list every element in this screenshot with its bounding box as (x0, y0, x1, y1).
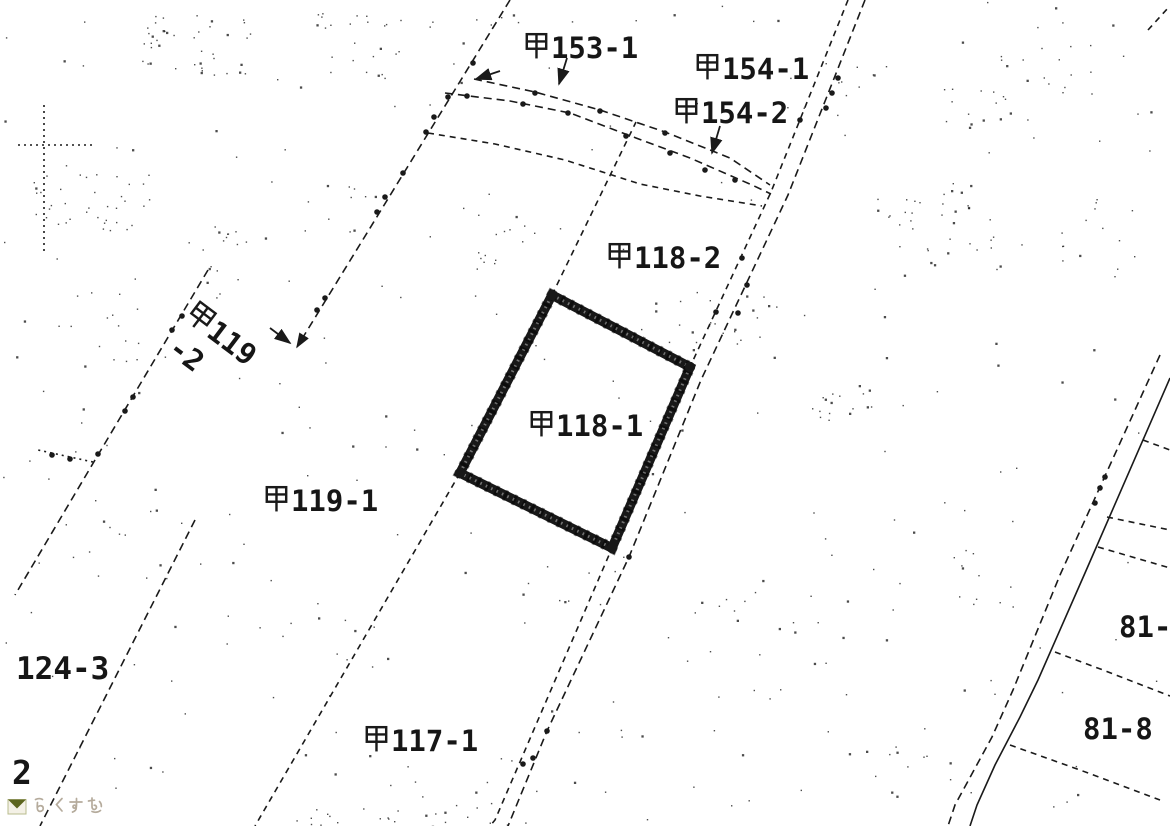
watermark: らくすむ (7, 795, 104, 815)
kanji-koh-glyph (673, 96, 700, 125)
road-se-left (948, 355, 1160, 826)
boundary-b (15, 270, 208, 595)
parcel-label-81: 81- (1119, 613, 1170, 642)
parcel-label-koh-154-2: 154-2 (673, 96, 788, 128)
parcel-81-divider (1055, 652, 1170, 696)
road-curve-low (428, 133, 762, 206)
kanji-koh-glyph (363, 724, 390, 753)
branch-2 (1107, 517, 1170, 530)
kanji-koh-glyph (606, 241, 633, 270)
branch-3 (1098, 547, 1170, 568)
watermark-glyphs (32, 795, 104, 815)
parcel-81-8-divider (1010, 745, 1160, 800)
corner-line-topright (1148, 8, 1168, 30)
boundary-b-branch (38, 450, 93, 462)
cadastral-map: 153-1154-1154-2118-2118-1119-2119-1124-3… (0, 0, 1170, 826)
parcel-label-koh-118-1: 118-1 (528, 409, 643, 441)
leader-road-end (476, 71, 500, 79)
branch-1 (1143, 440, 1170, 450)
rakusumu-logo-icon (7, 796, 27, 815)
parcel-label-81-8: 81-8 (1083, 715, 1153, 744)
parcel-label-koh-117-1: 117-1 (363, 724, 478, 756)
boundary-c (255, 473, 460, 826)
parcel-label-2: 2 (12, 756, 32, 789)
parcel-label-koh-154-1: 154-1 (694, 52, 809, 84)
leader-154-2 (712, 126, 720, 153)
kanji-koh-glyph (263, 484, 290, 513)
parcel-label-koh-119-1: 119-1 (263, 484, 378, 516)
kanji-koh-glyph (694, 52, 721, 81)
parcel-label-124-3: 124-3 (16, 654, 109, 685)
parcel-label-koh-118-2: 118-2 (606, 241, 721, 273)
leader-119-2 (270, 328, 290, 343)
kanji-koh-glyph (528, 409, 555, 438)
kanji-koh-glyph (523, 31, 550, 60)
parcel-label-koh-153-1: 153-1 (523, 31, 638, 63)
leader-arrows-layer (270, 58, 720, 343)
